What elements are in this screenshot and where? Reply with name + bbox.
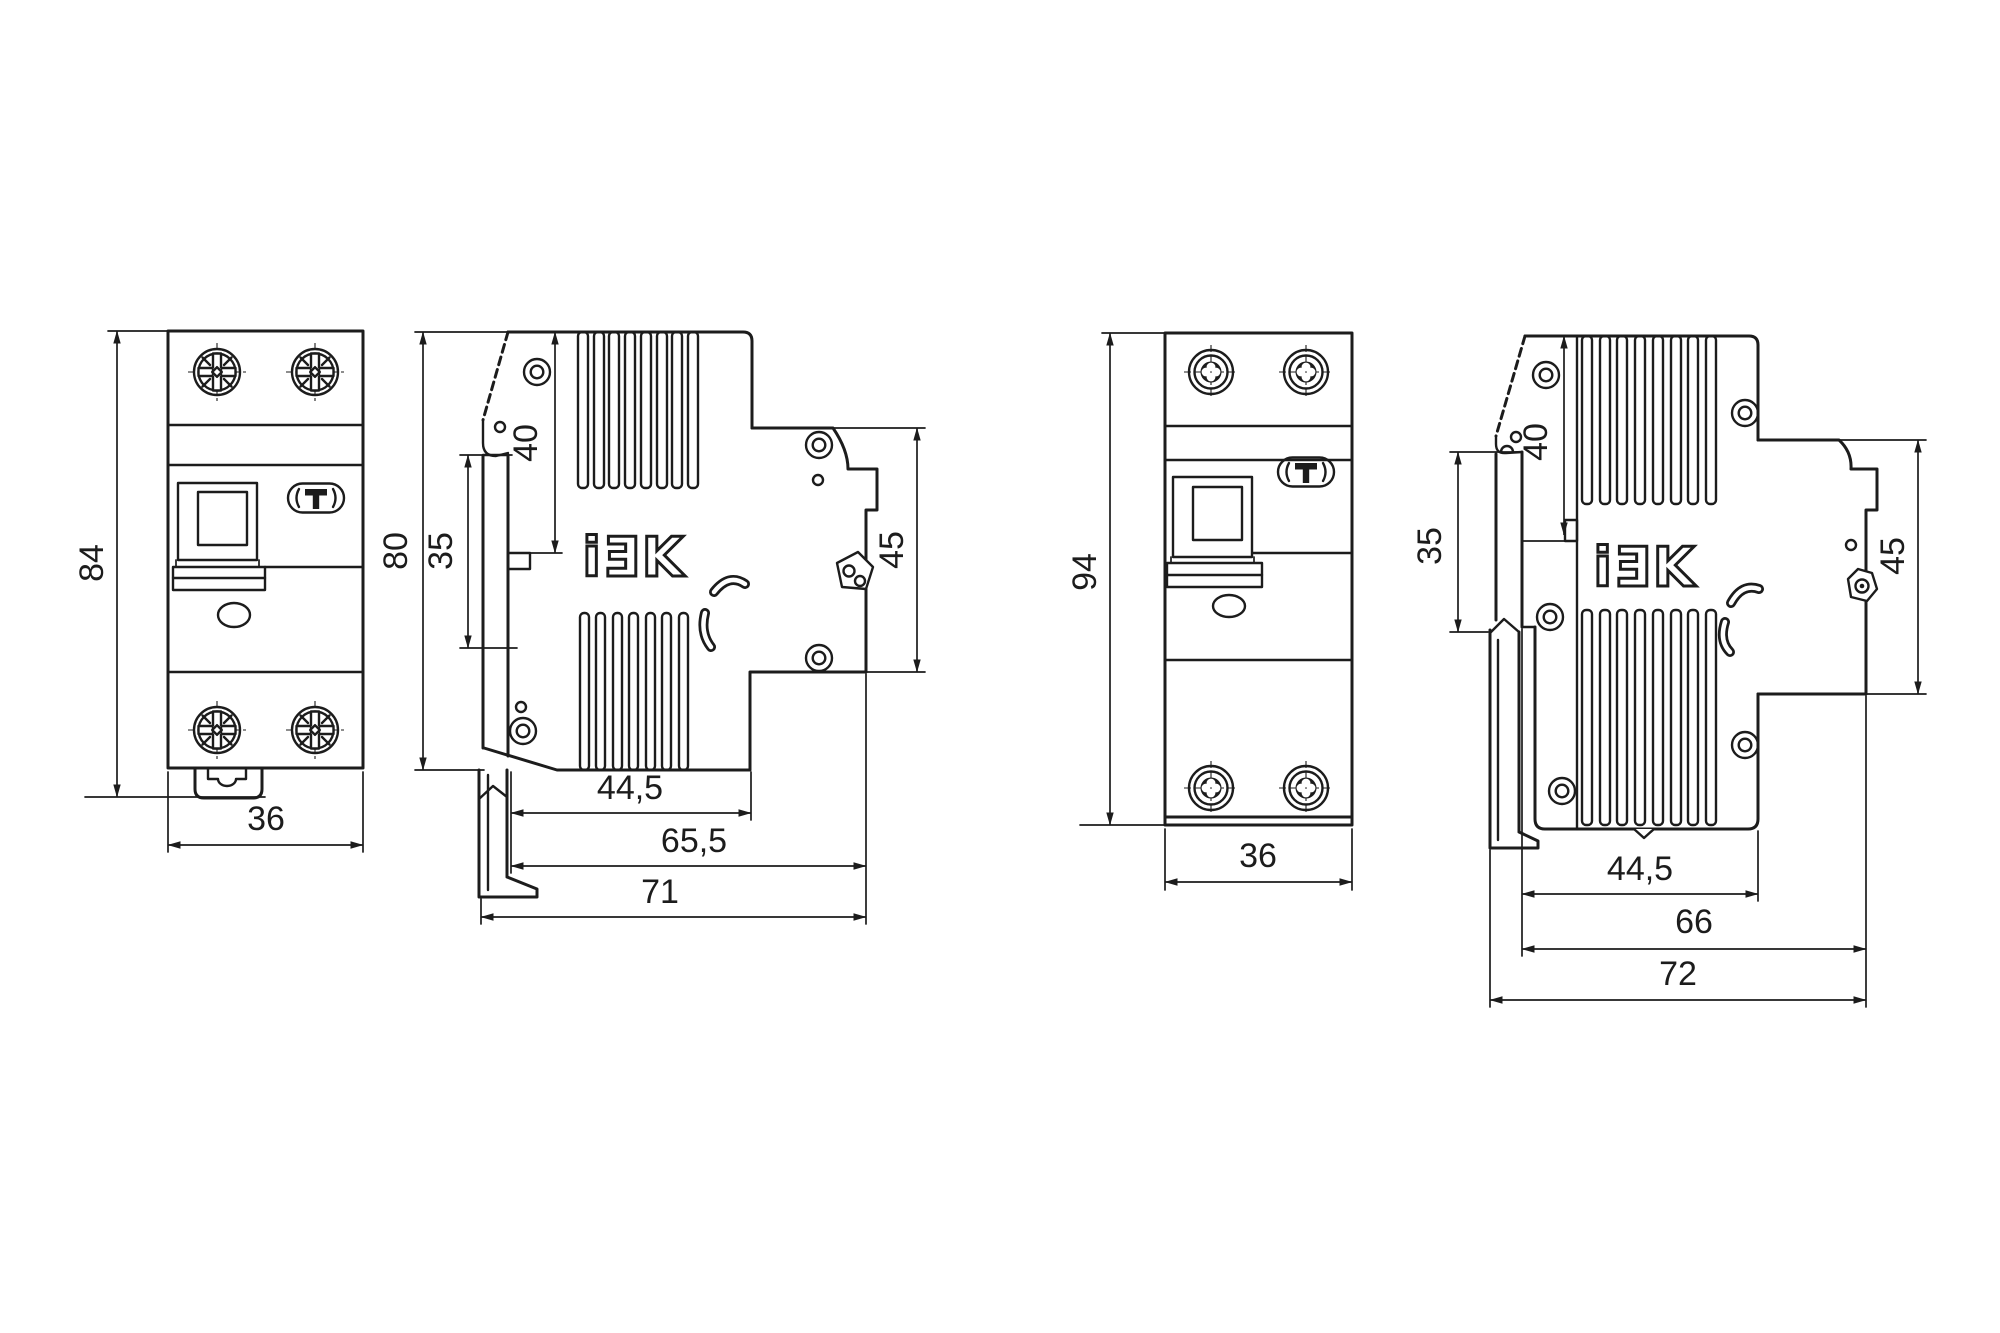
- dim-label-terminals-45: 45: [873, 531, 911, 569]
- technical-drawing-page: 84 36: [0, 0, 2000, 1333]
- toggle-switch: [173, 483, 265, 590]
- dim-label-upper-40: 40: [507, 424, 545, 462]
- dim-label-depth-72: 72: [1659, 955, 1697, 993]
- dim-label-depth-66: 66: [1675, 903, 1713, 941]
- dim-label-depth-44-5: 44,5: [1607, 850, 1673, 888]
- dim-label-depth-65-5: 65,5: [661, 822, 727, 860]
- dim-label-depth-71: 71: [641, 873, 679, 911]
- iek-logo: iƎK: [582, 526, 685, 589]
- dim-label-plate-35: 35: [422, 532, 460, 570]
- iek-logo: iƎK: [1593, 536, 1696, 599]
- toggle-switch: [1167, 477, 1262, 587]
- dim-label-width-36: 36: [247, 800, 285, 838]
- iek-breaker-dimension-drawing: 84 36: [0, 0, 2000, 1333]
- dim-label-height-94: 94: [1066, 553, 1104, 591]
- dim-label-plate-35: 35: [1411, 527, 1449, 565]
- dim-label-height-84: 84: [73, 544, 111, 582]
- dim-label-overall-80: 80: [377, 532, 415, 570]
- dim-label-width-36: 36: [1239, 837, 1277, 875]
- dim-label-terminals-45: 45: [1874, 537, 1912, 575]
- dim-label-depth-44-5: 44,5: [597, 769, 663, 807]
